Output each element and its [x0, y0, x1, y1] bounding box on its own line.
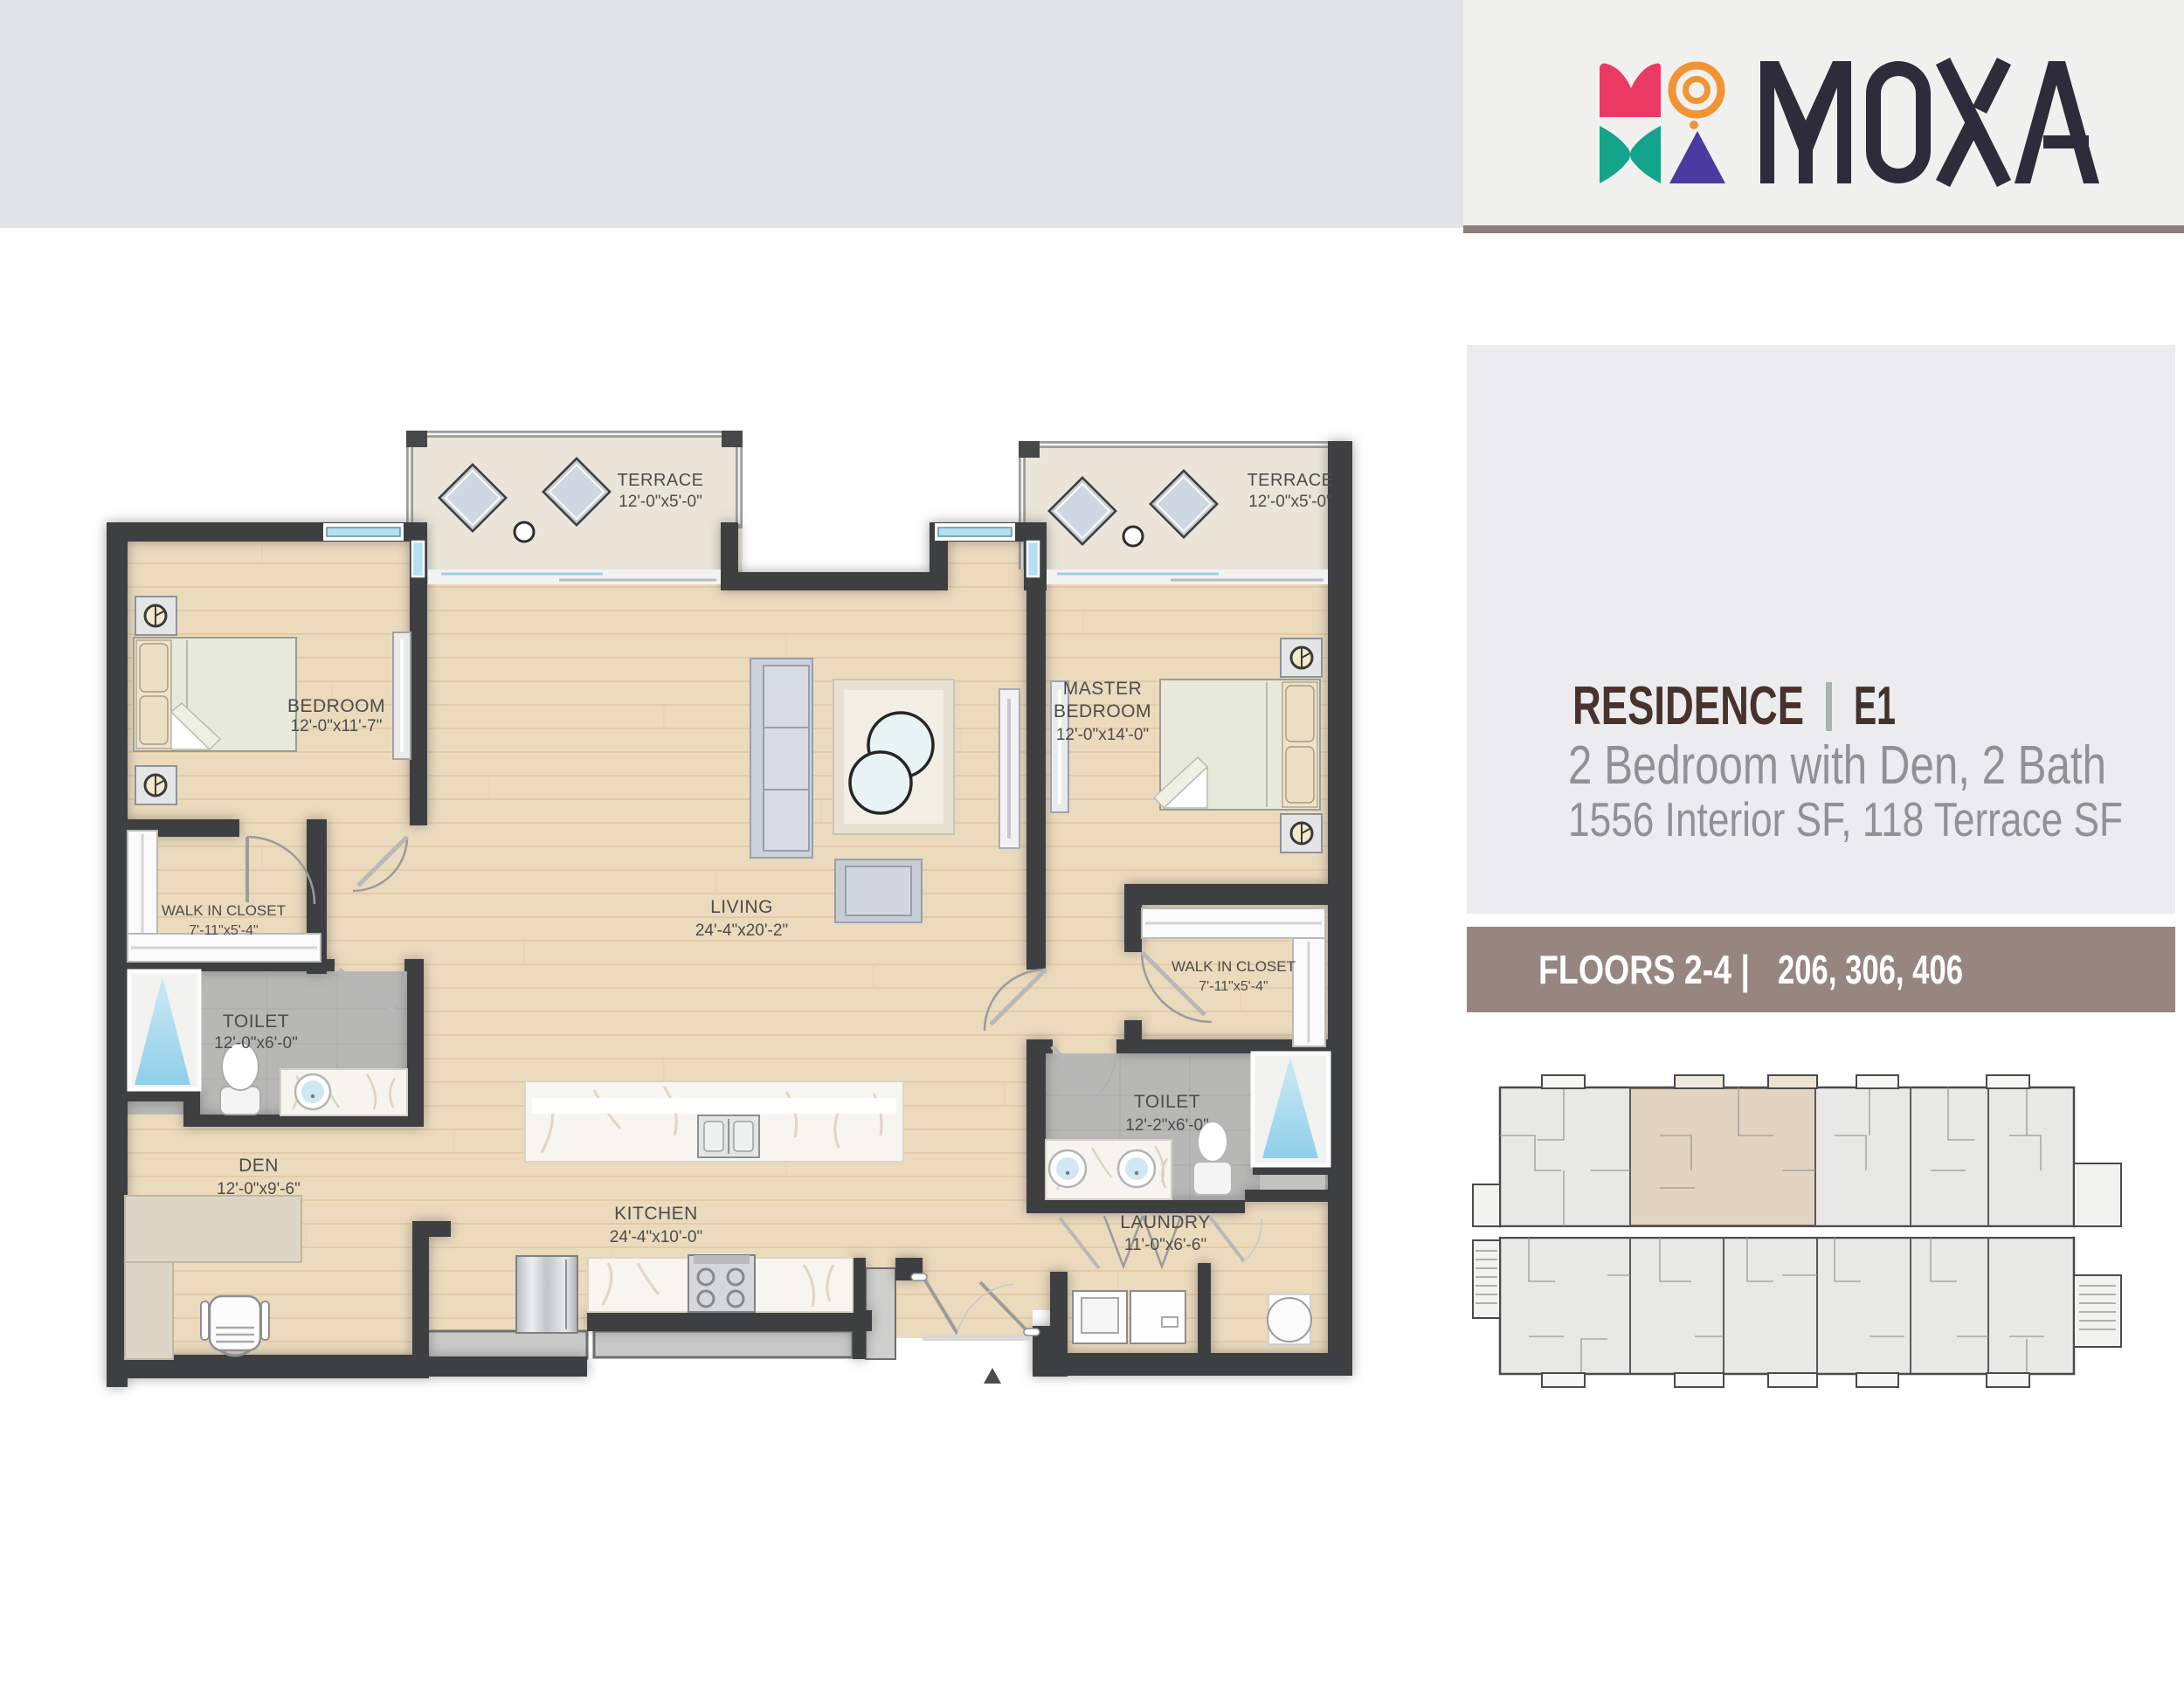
svg-text:1556 Interior SF, 118 Terrace: 1556 Interior SF, 118 Terrace SF	[1568, 792, 2123, 846]
svg-text:LAUNDRY: LAUNDRY	[1120, 1212, 1210, 1232]
svg-text:WALK IN CLOSET: WALK IN CLOSET	[1171, 958, 1296, 975]
svg-text:BEDROOM: BEDROOM	[287, 696, 385, 716]
svg-text:DEN: DEN	[238, 1156, 279, 1176]
svg-text:TERRACE: TERRACE	[1247, 471, 1333, 490]
svg-text:7'-11"x5'-4": 7'-11"x5'-4"	[189, 923, 258, 938]
svg-text:LIVING: LIVING	[710, 897, 773, 917]
svg-text:BEDROOM: BEDROOM	[1054, 701, 1151, 721]
svg-text:2 Bedroom with Den, 2 Bath: 2 Bedroom with Den, 2 Bath	[1568, 735, 2106, 796]
svg-text:12'-0"x5'-0": 12'-0"x5'-0"	[1248, 493, 1332, 511]
svg-text:12'-2"x6'-0": 12'-2"x6'-0"	[1125, 1116, 1209, 1135]
svg-text:TOILET: TOILET	[223, 1011, 289, 1032]
svg-text:FLOORS 2-4 |: FLOORS 2-4 |	[1538, 947, 1750, 992]
svg-text:11'-0"x6'-6": 11'-0"x6'-6"	[1124, 1236, 1206, 1254]
svg-text:12'-0"x11'-7": 12'-0"x11'-7"	[291, 717, 383, 735]
svg-text:12'-0"x9'-6": 12'-0"x9'-6"	[217, 1180, 301, 1198]
svg-text:MASTER: MASTER	[1063, 679, 1143, 699]
svg-text:12'-0"x14'-0": 12'-0"x14'-0"	[1056, 726, 1149, 744]
svg-text:12'-0"x6'-0": 12'-0"x6'-0"	[214, 1034, 298, 1053]
svg-text:RESIDENCE: RESIDENCE	[1572, 676, 1804, 736]
svg-text:206, 306, 406: 206, 306, 406	[1778, 947, 1963, 992]
svg-text:TOILET: TOILET	[1134, 1092, 1200, 1112]
svg-text:12'-0"x5'-0": 12'-0"x5'-0"	[619, 493, 702, 511]
svg-text:E1: E1	[1854, 676, 1896, 736]
svg-text:WALK IN CLOSET: WALK IN CLOSET	[162, 902, 286, 919]
svg-text:KITCHEN: KITCHEN	[614, 1204, 698, 1224]
svg-text:TERRACE: TERRACE	[617, 471, 703, 490]
svg-text:24'-4"x20'-2": 24'-4"x20'-2"	[695, 921, 788, 940]
svg-text:7'-11"x5'-4": 7'-11"x5'-4"	[1199, 979, 1268, 994]
svg-text:24'-4"x10'-0": 24'-4"x10'-0"	[610, 1228, 702, 1246]
